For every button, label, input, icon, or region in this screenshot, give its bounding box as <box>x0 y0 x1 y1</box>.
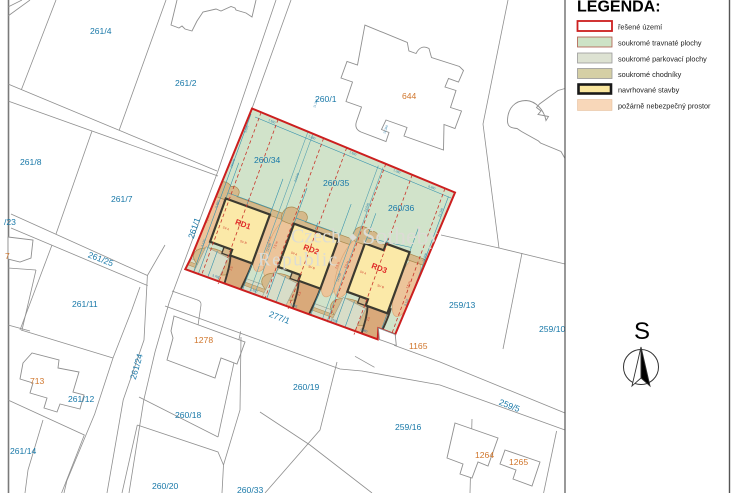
svg-text:1165: 1165 <box>409 341 428 351</box>
svg-text:260/34: 260/34 <box>254 155 281 165</box>
svg-text:260/36: 260/36 <box>388 203 415 213</box>
svg-text:LEGENDA:: LEGENDA: <box>577 0 661 16</box>
svg-text:Sotheby: Sotheby <box>362 224 441 250</box>
svg-text:◆: ◆ <box>349 232 357 243</box>
svg-text:261/7: 261/7 <box>111 194 133 204</box>
svg-text:řešené území: řešené území <box>618 23 662 32</box>
svg-text:260/1: 260/1 <box>315 94 337 104</box>
svg-text:soukromé parkovací plochy: soukromé parkovací plochy <box>618 55 707 64</box>
svg-text:/23: /23 <box>4 217 16 227</box>
svg-text:požárně nebezpečný prostor: požárně nebezpečný prostor <box>618 102 711 111</box>
svg-text:259/10: 259/10 <box>539 324 566 334</box>
svg-text:261/4: 261/4 <box>90 26 112 36</box>
svg-text:navrhované stavby: navrhované stavby <box>618 86 680 95</box>
svg-text:260/20: 260/20 <box>152 481 179 491</box>
svg-text:261/11: 261/11 <box>72 299 98 309</box>
svg-text:259/13: 259/13 <box>449 300 476 310</box>
svg-text:260/33: 260/33 <box>237 485 264 493</box>
svg-text:260/19: 260/19 <box>293 382 320 392</box>
svg-text:Republic: Republic <box>258 250 339 271</box>
svg-text:261/8: 261/8 <box>20 157 42 167</box>
svg-text:260/18: 260/18 <box>175 410 202 420</box>
svg-text:261/12: 261/12 <box>68 394 95 404</box>
svg-text:1264: 1264 <box>475 450 494 460</box>
svg-text:261/14: 261/14 <box>10 446 37 456</box>
svg-text:644: 644 <box>402 91 417 101</box>
svg-text:S: S <box>634 318 650 345</box>
svg-text:713: 713 <box>30 376 45 386</box>
svg-text:soukromé chodníky: soukromé chodníky <box>618 70 682 79</box>
svg-text:259/16: 259/16 <box>395 422 422 432</box>
svg-text:260/35: 260/35 <box>323 178 350 188</box>
svg-text:1265: 1265 <box>509 457 528 467</box>
svg-text:261/2: 261/2 <box>175 78 197 88</box>
svg-text:7: 7 <box>5 251 10 261</box>
svg-text:1278: 1278 <box>194 335 213 345</box>
svg-text:soukromé travnaté plochy: soukromé travnaté plochy <box>618 39 702 48</box>
svg-text:Czech: Czech <box>291 226 341 248</box>
